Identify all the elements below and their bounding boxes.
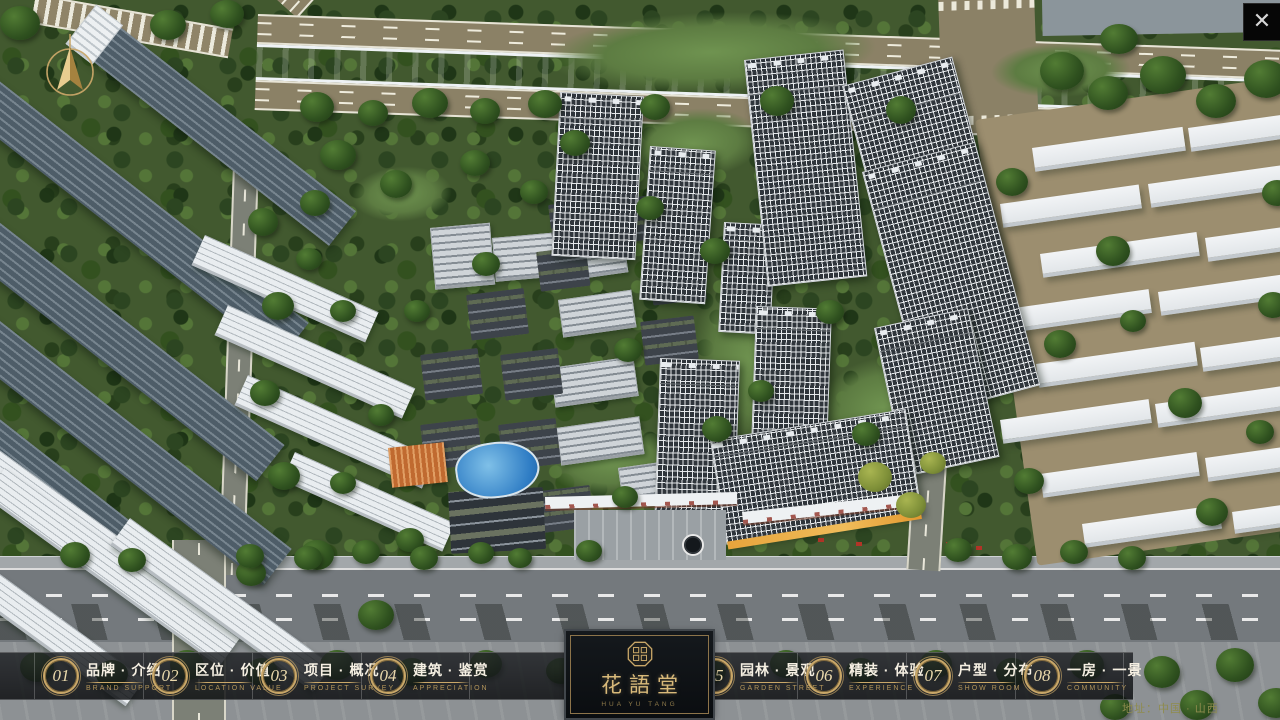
nav-item-brand[interactable]: 01 品牌 · 介绍 BRAND SUPPORT (34, 653, 143, 699)
trees (612, 486, 638, 508)
trees (1014, 468, 1044, 494)
midrise-building (550, 356, 639, 407)
nav-title: 精装 · 体验 (849, 660, 906, 680)
trees (944, 538, 972, 562)
nav-title: 区位 · 价值 (195, 660, 252, 680)
nav-item-project[interactable]: 03 项目 · 概况 PROJECT SURVEY (252, 653, 361, 699)
nav-number: 03 (271, 666, 288, 686)
residential-tower (551, 92, 643, 260)
project-address: 地址：中国 · 山西 (1122, 700, 1219, 716)
midrise-building (558, 290, 637, 338)
trees (210, 0, 244, 28)
nav-group-right: 05 园林 · 景观 GARDEN STREET 06 精装 · 体验 EXPE… (688, 653, 1124, 699)
nav-badge: 02 (152, 658, 188, 694)
trees (330, 472, 356, 494)
courtyard-houses (466, 288, 529, 341)
trees (150, 10, 186, 40)
trees (262, 292, 294, 320)
nav-badge: 06 (806, 658, 842, 694)
nav-label: 区位 · 价值 LOCATION VALUE (195, 660, 252, 692)
trees (268, 462, 300, 490)
nav-number: 06 (816, 666, 833, 686)
nav-item-floorplans[interactable]: 07 户型 · 分布 SHOW ROOM (906, 653, 1015, 699)
autumn-trees (896, 492, 926, 518)
gold-divider (413, 682, 469, 683)
trees (358, 100, 388, 126)
gold-divider (958, 682, 1015, 683)
trees (1002, 544, 1032, 570)
trees (300, 190, 330, 216)
nav-badge: 03 (261, 658, 297, 694)
logo-plaque[interactable]: 花語堂 HUA YU TANG (566, 631, 713, 718)
nav-title: 项目 · 概况 (304, 660, 361, 680)
trees (1246, 420, 1274, 444)
trees (1040, 52, 1084, 90)
nav-label: 一房 · 一景 COMMUNITY (1067, 660, 1123, 692)
trees (528, 90, 562, 118)
trees (60, 542, 90, 568)
nav-subtitle: GARDEN STREET (740, 685, 797, 692)
trees (236, 544, 264, 568)
nav-subtitle: EXPERIENCE (849, 685, 906, 692)
logo-subtitle: HUA YU TANG (601, 701, 677, 708)
trees (748, 380, 774, 402)
trees (468, 542, 494, 564)
trees (380, 170, 412, 198)
trees (1196, 84, 1236, 118)
trees (1100, 24, 1138, 54)
trees (248, 208, 278, 236)
residential-tower (639, 146, 716, 304)
trees (1168, 388, 1202, 418)
trees (300, 92, 334, 122)
autumn-trees (858, 462, 892, 492)
close-button[interactable]: ✕ (1243, 3, 1280, 41)
trees (1044, 330, 1076, 358)
gold-divider (195, 682, 252, 683)
trees (296, 248, 322, 270)
trees (0, 6, 40, 40)
trees (1258, 292, 1280, 318)
trees (118, 548, 146, 572)
nav-group-left: 01 品牌 · 介绍 BRAND SUPPORT 02 区位 · 价值 LOCA… (34, 653, 470, 699)
trees (996, 168, 1028, 196)
masterplan-aerial-render (0, 0, 1280, 720)
trees (886, 96, 916, 124)
trees (702, 416, 732, 442)
trees (368, 404, 394, 426)
clubhouse-roof (388, 442, 448, 488)
trees (412, 88, 448, 118)
trees (460, 150, 490, 176)
nav-number: 08 (1034, 666, 1051, 686)
trees (640, 94, 670, 120)
trees (508, 548, 532, 568)
gold-divider (304, 682, 361, 683)
trees (520, 180, 548, 204)
trees (576, 540, 602, 562)
trees (852, 422, 880, 446)
nav-title: 建筑 · 鉴赏 (413, 660, 469, 680)
logo-title: 花語堂 (594, 669, 685, 699)
gold-divider (86, 682, 143, 683)
trees (1060, 540, 1088, 564)
logo-frame: 花語堂 HUA YU TANG (570, 635, 709, 714)
nav-number: 07 (925, 666, 942, 686)
trees (320, 140, 356, 170)
trees (1088, 76, 1128, 110)
nav-label: 园林 · 景观 GARDEN STREET (740, 660, 797, 692)
trees (1244, 60, 1280, 98)
nav-item-room-views[interactable]: 08 一房 · 一景 COMMUNITY (1015, 653, 1124, 699)
nav-title: 户型 · 分布 (958, 660, 1015, 680)
nav-subtitle: COMMUNITY (1067, 685, 1123, 692)
trees (470, 98, 500, 124)
trees (560, 130, 590, 156)
autumn-trees (920, 452, 946, 474)
trees (294, 546, 322, 570)
nav-title: 一房 · 一景 (1067, 660, 1123, 680)
gold-divider (740, 682, 797, 683)
courtyard-houses (420, 348, 483, 401)
trees (330, 300, 356, 322)
nav-number: 01 (53, 666, 70, 686)
nav-item-location[interactable]: 02 区位 · 价值 LOCATION VALUE (143, 653, 252, 699)
trees (1140, 56, 1186, 94)
trees (1120, 310, 1146, 332)
nav-label: 项目 · 概况 PROJECT SURVEY (304, 660, 361, 692)
trees (760, 86, 794, 116)
nav-subtitle: APPRECIATION (413, 685, 469, 692)
trees (1118, 546, 1146, 570)
trees (1216, 648, 1254, 682)
gold-divider (1067, 682, 1123, 683)
nav-item-interior[interactable]: 06 精装 · 体验 EXPERIENCE (797, 653, 906, 699)
trees (410, 546, 438, 570)
nav-subtitle: LOCATION VALUE (195, 685, 252, 692)
nav-subtitle: BRAND SUPPORT (86, 685, 143, 692)
nav-label: 建筑 · 鉴赏 APPRECIATION (413, 660, 469, 692)
nav-title: 品牌 · 介绍 (86, 660, 143, 680)
trees (250, 380, 280, 406)
trees (358, 600, 394, 630)
nav-number: 02 (162, 666, 179, 686)
trees (472, 252, 500, 276)
nav-number: 04 (380, 666, 397, 686)
trees (352, 540, 380, 564)
gold-divider (849, 682, 906, 683)
nav-label: 品牌 · 介绍 BRAND SUPPORT (86, 660, 143, 692)
nav-label: 户型 · 分布 SHOW ROOM (958, 660, 1015, 692)
nav-badge: 08 (1024, 658, 1060, 694)
trees (1096, 236, 1130, 266)
nav-badge: 07 (915, 658, 951, 694)
nav-badge: 01 (43, 658, 79, 694)
trees (1144, 656, 1180, 688)
nav-title: 园林 · 景观 (740, 660, 797, 680)
nav-label: 精装 · 体验 EXPERIENCE (849, 660, 906, 692)
trees (404, 300, 430, 322)
trees (700, 238, 730, 264)
nav-badge: 04 (370, 658, 406, 694)
trees (1196, 498, 1228, 526)
nav-item-architecture[interactable]: 04 建筑 · 鉴赏 APPRECIATION (361, 653, 470, 699)
presentation-window: ✕ 01 品牌 · 介绍 BRAND SUPPORT 02 区位 · 价值 LO… (0, 0, 1280, 720)
octagonal-seal-icon (627, 641, 653, 667)
trees (614, 338, 642, 362)
courtyard-houses (500, 348, 563, 401)
trees (636, 196, 664, 220)
trees (816, 300, 844, 324)
compass-north-icon (40, 34, 100, 108)
nav-subtitle: PROJECT SURVEY (304, 685, 361, 692)
nav-subtitle: SHOW ROOM (958, 685, 1015, 692)
entrance-feature (682, 534, 704, 556)
